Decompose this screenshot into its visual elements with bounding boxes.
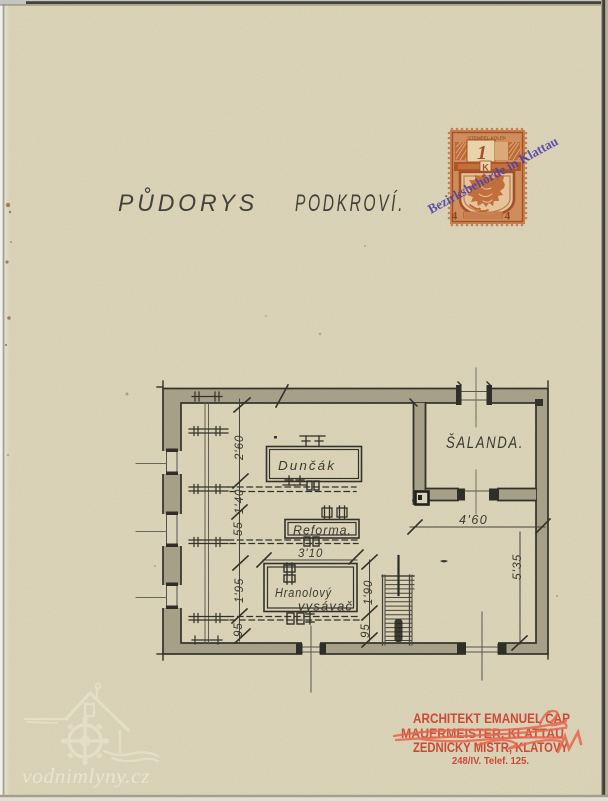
svg-text:248/IV. Telef. 125.: 248/IV. Telef. 125. xyxy=(452,755,529,767)
